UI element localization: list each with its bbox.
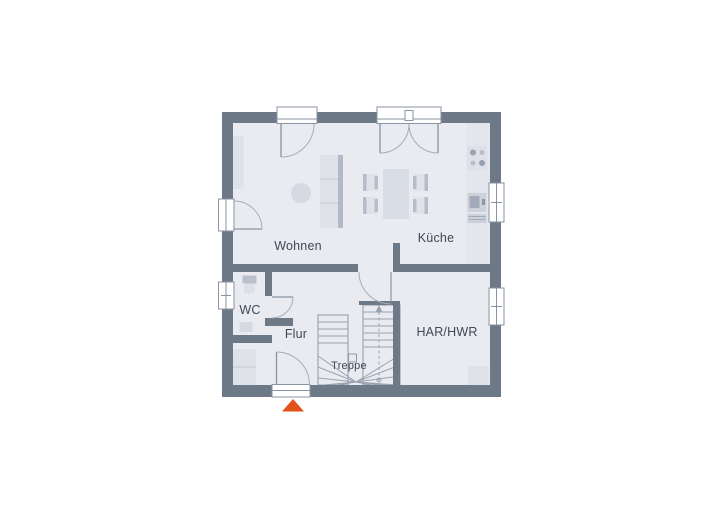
kitchen-sink [468, 193, 487, 212]
entrance-door-sill [272, 385, 310, 398]
dishwasher [468, 214, 487, 223]
floor-area [233, 123, 490, 385]
double-door-sill-top [377, 107, 441, 124]
wall-left [222, 112, 233, 397]
room-label-har-hwr: HAR/HWR [416, 325, 477, 339]
terrace-door-sill-top [277, 107, 317, 124]
floorplan-drawing [0, 0, 720, 530]
room-label-flur: Flur [285, 327, 307, 341]
wall-hall-right [393, 264, 490, 272]
shelving-unit [320, 155, 343, 228]
room-label-kueche: Küche [418, 231, 454, 245]
floorplan-canvas: Wohnen Küche WC Flur Treppe HAR/HWR [0, 0, 720, 530]
room-label-wohnen: Wohnen [274, 239, 322, 253]
terrace-door-sill-left [219, 199, 235, 231]
wall-top [222, 112, 501, 123]
window-har [489, 288, 504, 325]
window-kueche [489, 183, 504, 222]
utility-appliance [468, 366, 489, 385]
wash-basin [240, 322, 253, 332]
wall-right [490, 112, 501, 397]
dining-table [383, 169, 409, 219]
coffee-table [291, 183, 311, 203]
wall-wc-right [265, 272, 272, 296]
wall-bottom [222, 385, 501, 397]
wall-wc-bottom [233, 335, 272, 343]
wall-hall-left [233, 264, 358, 272]
stove [467, 146, 487, 170]
room-label-wc: WC [239, 303, 260, 317]
wall-kitchen-stub [393, 243, 400, 264]
wall-har-left [393, 303, 400, 385]
window-wc [219, 282, 235, 309]
entrance-marker-icon [282, 399, 304, 412]
wall-wc-stub [265, 318, 293, 326]
room-label-treppe: Treppe [331, 360, 367, 372]
